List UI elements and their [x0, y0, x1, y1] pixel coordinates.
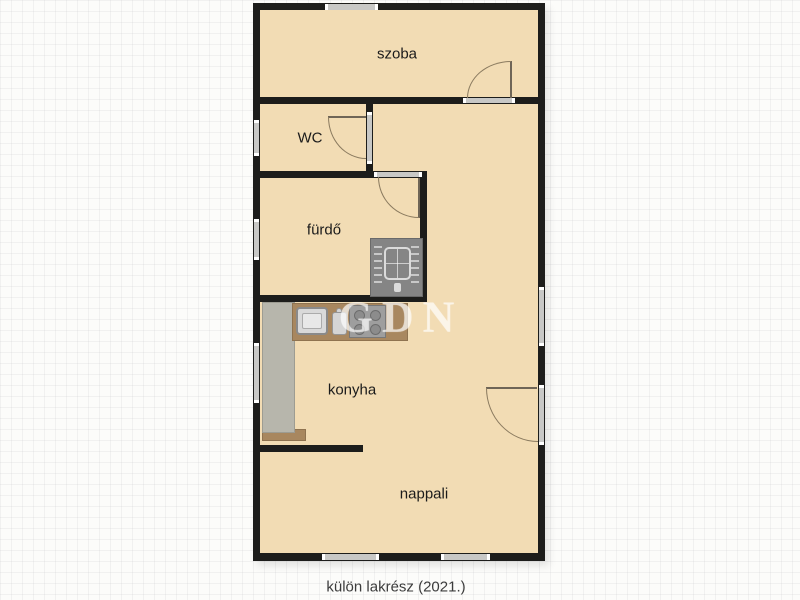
- window-left-konyha: [254, 343, 259, 403]
- kitchen-cabinet: [262, 302, 295, 433]
- gdn-watermark: GDN: [339, 292, 464, 343]
- wall-konyha-bottom: [253, 445, 363, 452]
- room-label-wc: WC: [298, 130, 323, 147]
- kitchen-sink-basin: [302, 313, 322, 329]
- room-label-nappali: nappali: [400, 486, 448, 503]
- washing-machine-panel-right: [411, 246, 419, 288]
- szoba-door-opening: [463, 98, 515, 103]
- kitchen-sink: [296, 307, 328, 335]
- room-label-konyha: konyha: [328, 382, 376, 399]
- washing-machine-panel-left: [374, 246, 382, 288]
- wall-left: [253, 3, 260, 561]
- plan-caption: külön lakrész (2021.): [326, 579, 465, 596]
- wall-right: [538, 3, 545, 561]
- room-label-furdo: fürdő: [307, 222, 341, 239]
- window-bottom-1: [322, 554, 379, 560]
- washing-machine: [370, 238, 423, 297]
- wall-bottom: [253, 553, 545, 561]
- room-label-szoba: szoba: [377, 46, 417, 63]
- wc-door-opening: [367, 112, 372, 164]
- nappali-door-opening: [539, 385, 544, 445]
- washing-machine-door: [384, 247, 411, 280]
- floorplan-canvas: szoba WC fürdő konyha nappali GDN külön …: [0, 0, 800, 600]
- window-left-furdo: [254, 219, 259, 260]
- window-top: [325, 4, 378, 10]
- wall-top: [253, 3, 545, 10]
- window-right: [539, 287, 544, 346]
- window-bottom-2: [441, 554, 490, 560]
- window-left-wc: [254, 120, 259, 156]
